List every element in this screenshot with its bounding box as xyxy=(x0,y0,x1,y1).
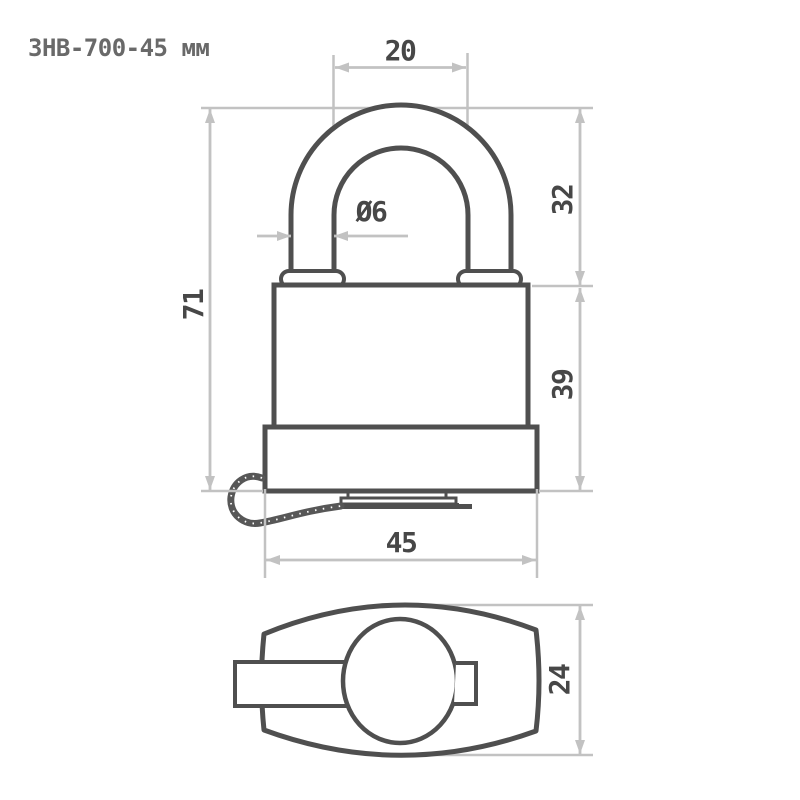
bottom-view xyxy=(235,605,539,755)
dimension-shackle-inner-width: 20 xyxy=(335,34,466,73)
bottom-view-cylinder-circle xyxy=(343,619,457,743)
dim-label-71: 71 xyxy=(177,289,210,320)
arrowhead-up-icon xyxy=(575,109,585,123)
dim-label-d6: Ø6 xyxy=(355,195,387,228)
arrowhead-right-icon xyxy=(452,63,466,73)
front-view xyxy=(231,105,537,523)
padlock-base xyxy=(265,427,537,491)
arrowhead-down-icon xyxy=(205,476,215,490)
dimension-body-depth: 24 xyxy=(543,606,585,754)
arrowhead-up-icon xyxy=(205,109,215,123)
arrowhead-left-icon xyxy=(266,555,280,565)
dimension-body-height: 39 xyxy=(546,288,585,490)
arrowhead-down-icon xyxy=(575,740,585,754)
dim-label-45: 45 xyxy=(386,526,417,559)
arrowhead-down-icon xyxy=(575,476,585,490)
padlock-drawing: 20 Ø6 71 32 39 xyxy=(0,0,800,800)
arrowhead-up-icon xyxy=(575,606,585,620)
bottom-view-right-tab xyxy=(454,663,476,704)
arrowhead-down-icon xyxy=(575,271,585,285)
arrowhead-up-icon xyxy=(575,288,585,302)
arrowhead-right-icon xyxy=(522,555,536,565)
padlock-body xyxy=(274,285,528,427)
cover-slider xyxy=(339,503,459,509)
dimension-total-height: 71 xyxy=(177,109,215,490)
dim-label-20: 20 xyxy=(385,34,416,67)
dimension-shackle-height: 32 xyxy=(546,109,585,285)
dimension-body-width: 45 xyxy=(266,526,536,565)
technical-drawing-page: ЗНВ-700-45 мм xyxy=(0,0,800,800)
shackle-inner xyxy=(334,148,468,272)
arrowhead-left-icon xyxy=(335,63,349,73)
dim-label-39: 39 xyxy=(546,369,579,400)
dim-label-24: 24 xyxy=(543,664,576,695)
cover-slider-tab xyxy=(457,504,472,509)
dim-label-32: 32 xyxy=(546,185,579,216)
